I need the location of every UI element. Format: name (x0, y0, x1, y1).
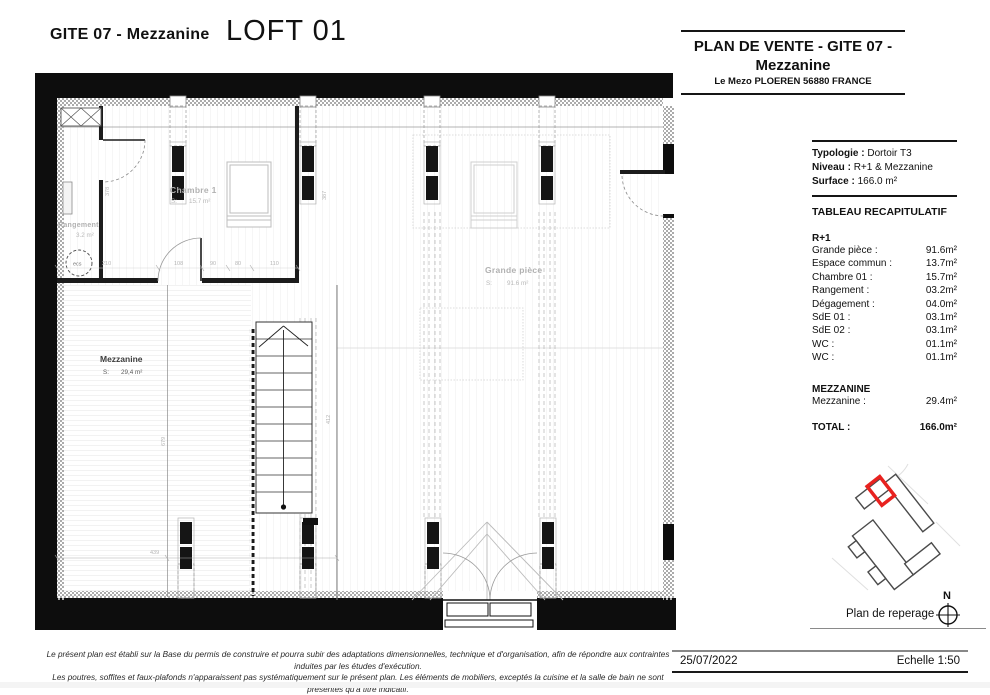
locator-divider (810, 628, 986, 629)
room-label-rangement: Rangement (58, 222, 99, 229)
dimension-text: 108 (174, 261, 183, 267)
floor-plan: ecs (35, 68, 695, 638)
electrical-panel (63, 182, 72, 214)
svg-text:ecs: ecs (73, 262, 82, 268)
title-block: PLAN DE VENTE - GITE 07 - Mezzanine Le M… (681, 30, 905, 95)
north-compass-icon: N (932, 588, 964, 630)
guardrail (250, 328, 255, 596)
summary-row: Espace commun :13.7m² (812, 257, 957, 270)
svg-text:S:: S: (103, 369, 109, 376)
unit-facts: Typologie : Dortoir T3 Niveau : R+1 & Me… (812, 140, 957, 197)
svg-text:15.7 m²: 15.7 m² (189, 198, 210, 205)
svg-text:29,4 m²: 29,4 m² (121, 369, 142, 376)
summary-row: WC :01.1m² (812, 338, 957, 351)
project-address: Le Mezo PLOEREN 56880 FRANCE (681, 76, 905, 87)
unit-title: LOFT 01 (226, 15, 347, 48)
summary-panel: Typologie : Dortoir T3 Niveau : R+1 & Me… (812, 140, 957, 434)
dimension-text: 80 (235, 261, 241, 267)
section-mezzanine: MEZZANINE (812, 384, 957, 395)
typology-value: Dortoir T3 (867, 148, 911, 159)
date-scale-block: 25/07/2022 Echelle 1:50 (672, 650, 968, 673)
summary-table-title: TABLEAU RECAPITULATIF (812, 206, 957, 218)
dimension-text: 378 (105, 187, 111, 196)
level-label: Niveau : (812, 162, 851, 173)
bottom-margin (0, 682, 990, 688)
dimension-text: 412 (326, 415, 332, 424)
surface-row: Surface : 166.0 m² (812, 175, 957, 189)
summary-total-row: TOTAL :166.0m² (812, 421, 957, 434)
site-plan-map (828, 462, 963, 597)
room-label-grande-piece: Grande pièce (485, 265, 542, 275)
summary-row: WC :01.1m² (812, 351, 957, 364)
surface-label: Surface : (812, 176, 855, 187)
section-r1: R+1 (812, 233, 957, 244)
dimension-text: 210 (102, 261, 111, 267)
scale-label: Echelle 1:50 (897, 655, 960, 667)
sheet-title-line1: PLAN DE VENTE - GITE 07 - (681, 37, 905, 56)
plan-de-vente-sheet: { "header": { "project_ref": "GITE 07 - … (0, 0, 990, 688)
summary-row: Dégagement :04.0m² (812, 298, 957, 311)
locator-caption: Plan de reperage (846, 608, 934, 620)
sheet-title-line2: Mezzanine (681, 56, 905, 75)
level-value: R+1 & Mezzanine (854, 162, 933, 173)
svg-text:S:: S: (58, 232, 64, 239)
summary-row: Chambre 01 :15.7m² (812, 271, 957, 284)
dimension-text: 679 (161, 437, 167, 446)
shaft-crossed-box (61, 108, 101, 126)
room-label-chambre: Chambre 1 (170, 185, 217, 195)
typology-row: Typologie : Dortoir T3 (812, 147, 957, 161)
room-label-mezzanine: Mezzanine (100, 354, 143, 364)
summary-row: Mezzanine :29.4m² (812, 395, 957, 408)
summary-row: Grande pièce :91.6m² (812, 244, 957, 257)
svg-text:S:: S: (486, 280, 492, 287)
summary-row: Rangement :03.2m² (812, 284, 957, 297)
summary-row: SdE 02 :03.1m² (812, 324, 957, 337)
project-reference: GITE 07 - Mezzanine (50, 26, 210, 44)
dimension-text: 90 (210, 261, 216, 267)
svg-text:3.2 m²: 3.2 m² (76, 232, 94, 239)
dimension-text: 439 (150, 550, 159, 556)
level-row: Niveau : R+1 & Mezzanine (812, 161, 957, 175)
summary-row: SdE 01 :03.1m² (812, 311, 957, 324)
bed-chambre (227, 162, 271, 227)
plan-date: 25/07/2022 (680, 655, 738, 667)
dimension-text: 387 (322, 191, 328, 200)
dimension-text: 110 (270, 261, 279, 267)
disclaimer: Le présent plan est établi sur la Base d… (38, 649, 678, 695)
surface-value: 166.0 m² (858, 176, 897, 187)
svg-text:S:: S: (171, 198, 177, 205)
typology-label: Typologie : (812, 148, 865, 159)
north-label: N (943, 590, 951, 602)
svg-text:91.6 m²: 91.6 m² (507, 280, 528, 287)
disclaimer-line1: Le présent plan est établi sur la Base d… (38, 649, 678, 672)
